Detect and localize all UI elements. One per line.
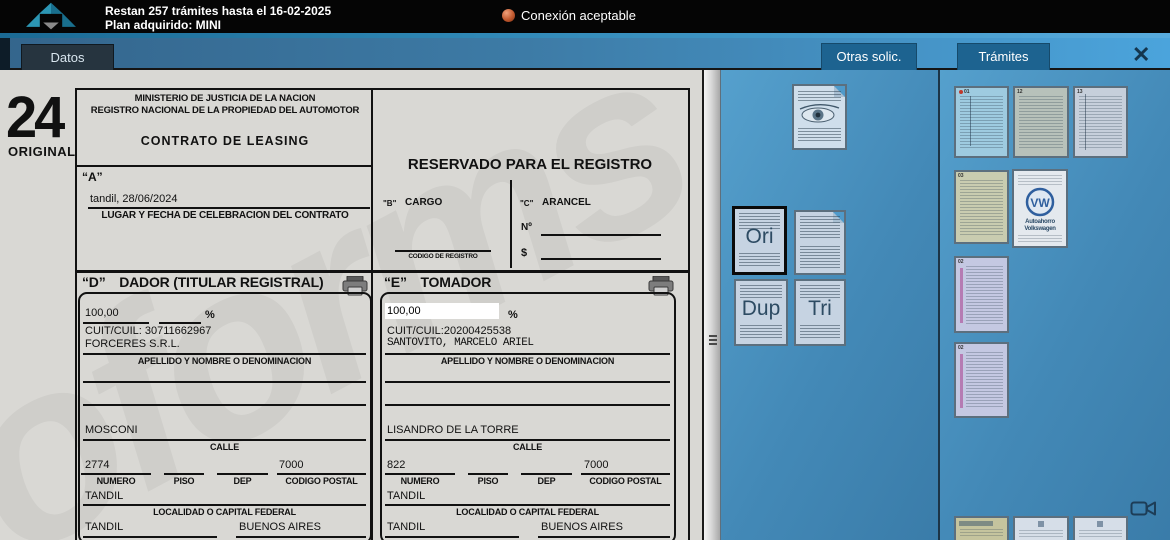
- copy-triplicado-label: Tri: [796, 297, 844, 321]
- marker-dot-icon: [959, 90, 963, 94]
- field-line: [83, 504, 366, 506]
- dador-locality[interactable]: TANDIL: [85, 490, 123, 502]
- field-line: [521, 473, 572, 475]
- document-thumbnail[interactable]: [1015, 518, 1067, 540]
- close-icon[interactable]: ✕: [1132, 42, 1150, 68]
- section-e-header: “E” TOMADOR: [384, 274, 491, 290]
- dador-locality-caption: LOCALIDAD O CAPITAL FEDERAL: [83, 507, 366, 517]
- field-line: [83, 439, 366, 441]
- header-bottom-line: [75, 165, 373, 167]
- document-thumbnail[interactable]: 01: [956, 88, 1007, 156]
- dador-piso-caption: PISO: [164, 476, 204, 486]
- section-c-title: ARANCEL: [542, 197, 591, 208]
- reserved-divider-line: [510, 180, 512, 268]
- sheet-top-line: [75, 88, 690, 90]
- thumbnail-header-bar: [959, 521, 993, 526]
- tomador-number-caption: NUMERO: [385, 476, 455, 486]
- tomador-piso-caption: PISO: [468, 476, 508, 486]
- thumbnail-text-lines: [966, 352, 1003, 408]
- field-line: [581, 473, 670, 475]
- logo-icon: [12, 1, 90, 32]
- tab-datos[interactable]: Datos: [22, 45, 113, 70]
- field-line: [385, 439, 670, 441]
- section-b-tag: "B": [383, 199, 396, 208]
- app-logo: [12, 1, 90, 37]
- field-line: [385, 536, 519, 538]
- copy-triplicado-thumbnail[interactable]: Tri: [796, 281, 844, 344]
- form-title: CONTRATO DE LEASING: [80, 134, 370, 148]
- toolbar-left-ledge: [0, 38, 10, 70]
- panel-splitter[interactable]: [704, 70, 721, 540]
- dador-number[interactable]: 2774: [85, 459, 109, 471]
- tomador-street[interactable]: LISANDRO DE LA TORRE: [387, 424, 519, 436]
- preview-document-thumbnail[interactable]: [794, 86, 845, 148]
- field-line: [541, 258, 661, 260]
- volkswagen-document-thumbnail[interactable]: VW Autoahorro Volkswagen: [1014, 171, 1066, 246]
- connection-status-text: Conexión aceptable: [521, 8, 636, 23]
- vw-brand-line1: Autoahorro: [1014, 219, 1066, 225]
- document-thumbnail[interactable]: 12: [1015, 88, 1067, 156]
- dador-street-caption: CALLE: [83, 442, 366, 452]
- thumbnail-accent-bar: [960, 268, 963, 323]
- remaining-tramites-text: Restan 257 trámites hasta el 16-02-2025: [105, 4, 331, 18]
- thumbnail-text-lines: [800, 246, 840, 268]
- section-d-header: “D” DADOR (TITULAR REGISTRAL): [82, 274, 323, 290]
- thumbnail-text-lines: [800, 216, 840, 240]
- tomador-percent-input[interactable]: [385, 303, 499, 319]
- arancel-peso-label: $: [521, 247, 527, 259]
- dador-dep-caption: DEP: [217, 476, 268, 486]
- document-number: 02: [958, 259, 964, 265]
- tomador-name: SANTOVITO, MARCELO ARIEL: [387, 337, 533, 349]
- dador-city[interactable]: TANDIL: [85, 521, 123, 533]
- dador-postal-caption: CODIGO POSTAL: [277, 476, 366, 486]
- dador-street[interactable]: MOSCONI: [85, 424, 138, 436]
- copy-extra-thumbnail[interactable]: [796, 212, 844, 273]
- arancel-nro-label: Nº: [521, 222, 532, 233]
- splitter-grip-icon: [709, 335, 717, 337]
- plan-info: Restan 257 trámites hasta el 16-02-2025 …: [105, 4, 331, 32]
- tomador-percent-sign: %: [508, 309, 518, 321]
- tab-otras-solicitudes[interactable]: Otras solic.: [822, 44, 916, 70]
- section-b-title: CARGO: [405, 197, 442, 208]
- field-line: [385, 473, 455, 475]
- dador-percent-sign: %: [205, 309, 215, 321]
- field-line: [81, 473, 151, 475]
- field-line: [395, 250, 491, 252]
- copy-original-label: Ori: [735, 225, 784, 249]
- thumbnail-text-lines: [1079, 530, 1122, 538]
- thumbnail-rule: [1085, 94, 1086, 150]
- sections-top-line: [75, 270, 690, 273]
- field-line: [277, 473, 366, 475]
- thumbnail-text-lines: [800, 325, 840, 340]
- form-copy-type: ORIGINAL: [8, 144, 76, 159]
- vw-brand-line2: Volkswagen: [1014, 226, 1066, 232]
- form-number: 24: [6, 82, 62, 150]
- thumbnail-text-lines: [960, 529, 1003, 538]
- tomador-locality[interactable]: TANDIL: [387, 490, 425, 502]
- form-document: oforms 24 ORIGINAL MINISTERIO DE JUSTICI…: [0, 70, 704, 540]
- field-line: [83, 353, 366, 355]
- thumbnail-text-lines: [960, 96, 1003, 150]
- contract-place-date-value[interactable]: tandil, 28/06/2024: [90, 193, 177, 205]
- sheet-right-line: [688, 88, 690, 540]
- thumbnail-text-lines: [798, 91, 841, 103]
- section-c-tag: "C": [520, 199, 533, 208]
- tomador-postal-caption: CODIGO POSTAL: [581, 476, 670, 486]
- field-line: [236, 536, 366, 538]
- thumbnail-text-lines: [1019, 530, 1063, 538]
- tomador-province[interactable]: BUENOS AIRES: [541, 521, 623, 533]
- ministry-line1: MINISTERIO DE JUSTICIA DE LA NACION: [80, 93, 370, 104]
- field-line: [83, 381, 366, 383]
- field-line: [541, 234, 661, 236]
- field-line: [83, 536, 217, 538]
- reserved-title: RESERVADO PARA EL REGISTRO: [380, 156, 680, 173]
- thumbnail-text-lines: [739, 253, 780, 268]
- dador-percent-value[interactable]: 100,00: [85, 307, 119, 319]
- tab-tramites[interactable]: Trámites: [958, 44, 1049, 70]
- dador-cuit: CUIT/CUIL: 30711662967: [85, 325, 211, 337]
- field-line: [538, 536, 670, 538]
- dador-name-caption: APELLIDO Y NOMBRE O DENOMINACION: [83, 356, 366, 366]
- section-d-title: DADOR (TITULAR REGISTRAL): [119, 274, 323, 290]
- field-line: [83, 322, 149, 324]
- copy-duplicado-label: Dup: [736, 297, 786, 321]
- field-line: [468, 473, 508, 475]
- thumbnail-seal: [1038, 521, 1044, 527]
- field-line: [385, 504, 670, 506]
- field-line: [159, 322, 201, 324]
- thumbnail-seal: [1097, 521, 1103, 527]
- document-thumbnail[interactable]: 13: [1075, 88, 1126, 156]
- field-line: [385, 353, 670, 355]
- tomador-locality-caption: LOCALIDAD O CAPITAL FEDERAL: [385, 507, 670, 517]
- field-line: [164, 473, 204, 475]
- thumbnail-text-lines: [740, 325, 782, 340]
- document-thumbnail[interactable]: [1075, 518, 1126, 540]
- field-line: [385, 404, 670, 406]
- section-e-title: TOMADOR: [420, 274, 491, 290]
- connection-status-icon: [502, 9, 515, 22]
- field-line: [88, 207, 370, 209]
- ministry-line2: REGISTRO NACIONAL DE LA PROPIEDAD DEL AU…: [80, 105, 370, 116]
- field-line: [217, 473, 268, 475]
- plan-text: Plan adquirido: MINI: [105, 18, 331, 32]
- tomador-number[interactable]: 822: [387, 459, 405, 471]
- section-b-caption: CODIGO DE REGISTRO: [390, 253, 496, 260]
- tomador-postal[interactable]: 7000: [584, 459, 608, 471]
- thumbnail-text-lines: [798, 128, 841, 142]
- thumbnail-text-lines: [1018, 235, 1062, 243]
- thumbnail-text-lines: [966, 266, 1003, 324]
- section-d-tag: “D”: [82, 274, 106, 290]
- dador-name: FORCERES S.R.L.: [85, 338, 180, 350]
- svg-text:VW: VW: [1030, 196, 1050, 210]
- tomador-name-caption: APELLIDO Y NOMBRE O DENOMINACION: [385, 356, 670, 366]
- thumbnail-text-lines: [960, 180, 1003, 236]
- document-number: 03: [958, 173, 964, 179]
- copy-duplicado-thumbnail[interactable]: Dup: [736, 281, 786, 344]
- section-a-tag: “A”: [82, 170, 103, 184]
- tomador-dep-caption: DEP: [521, 476, 572, 486]
- section-e-tag: “E”: [384, 274, 407, 290]
- tomador-street-caption: CALLE: [385, 442, 670, 452]
- document-thumbnail[interactable]: [956, 518, 1007, 540]
- copy-original-thumbnail[interactable]: Ori: [735, 209, 784, 272]
- document-thumbnail[interactable]: 03: [956, 172, 1007, 242]
- dador-province[interactable]: BUENOS AIRES: [239, 521, 321, 533]
- document-number: 01: [964, 89, 970, 95]
- thumbnail-accent-bar: [960, 354, 963, 408]
- document-number: 12: [1017, 89, 1023, 95]
- thumbnail-text-lines: [1019, 96, 1063, 150]
- dador-postal[interactable]: 7000: [279, 459, 303, 471]
- camera-button[interactable]: [1130, 499, 1157, 523]
- document-number: 13: [1077, 89, 1083, 95]
- document-thumbnail[interactable]: 02: [956, 258, 1007, 331]
- section-a-caption: LUGAR Y FECHA DE CELEBRACION DEL CONTRAT…: [80, 210, 370, 221]
- tomador-city[interactable]: TANDIL: [387, 521, 425, 533]
- tomador-cuit: CUIT/CUIL:20200425538: [387, 325, 511, 337]
- eye-icon: [797, 103, 842, 125]
- field-line: [385, 381, 670, 383]
- camera-icon: [1130, 499, 1157, 518]
- document-number: 02: [958, 345, 964, 351]
- field-line: [83, 404, 366, 406]
- thumbnail-rule: [970, 96, 971, 146]
- dador-number-caption: NUMERO: [81, 476, 151, 486]
- thumbnail-text-lines: [1018, 175, 1062, 185]
- vw-logo-icon: VW: [1025, 187, 1055, 217]
- document-thumbnail[interactable]: 02: [956, 344, 1007, 416]
